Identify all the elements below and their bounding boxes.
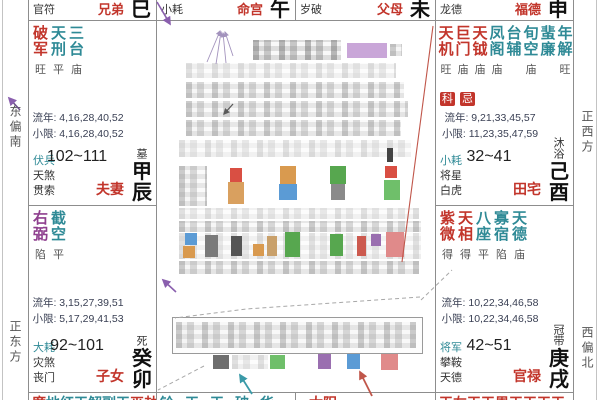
star-list: 铃天天破华: [160, 393, 285, 400]
shensha-label: 岁破: [300, 1, 322, 17]
stem-branch: 癸卯: [131, 349, 153, 391]
liunian-ages: 流年: 3,15,27,39,51: [28, 295, 128, 310]
star-list: 廉地红天解副天巫劫: [32, 393, 156, 400]
lifecycle-state: 冠带: [550, 324, 566, 346]
lifecycle-state: 死: [133, 335, 149, 346]
branch-char: 未: [410, 0, 430, 20]
palace-cell-yin[interactable]: 廉地红天解副天巫劫: [28, 392, 156, 400]
palace-cell-mao[interactable]: 右弼陷 截空平 流年: 3,15,27,39,51 小限: 5,17,29,41…: [28, 205, 156, 392]
shensha-label: 龙德: [440, 1, 462, 17]
star-list: 太阳: [309, 393, 337, 400]
grid-line: [2, 0, 3, 400]
sihua-badge: 科: [440, 92, 455, 106]
sihua-badge: 忌: [460, 92, 475, 106]
branch-char: 巳: [131, 0, 151, 20]
star-column: 年解旺: [557, 26, 573, 73]
shensha-label: 小耗: [161, 1, 183, 17]
decade-range: 42~51: [435, 337, 543, 355]
palace-cell-chen[interactable]: 破军旺 天刑平 三台庙 流年: 4,16,28,40,52 小限: 4,16,2…: [28, 20, 156, 205]
decade-range: 92~101: [28, 337, 126, 355]
shensha-label: 将星: [440, 169, 462, 184]
xiaoxian-ages: 小限: 4,16,28,40,52: [28, 126, 128, 141]
stem-branch: 庚戌: [548, 349, 570, 391]
star-column: 截空平: [50, 211, 67, 258]
palace-cell-zi[interactable]: 太阳: [295, 392, 435, 400]
xiaoxian-ages: 小限: 5,17,29,41,53: [28, 311, 128, 326]
palace-cell-shen[interactable]: 龙德 福德 申: [435, 0, 573, 20]
star-column: 三台庙: [68, 26, 85, 73]
palace-name: 命宫: [237, 0, 263, 18]
star-column: 蜚廉: [540, 26, 556, 73]
star-column: 八座平: [475, 211, 492, 258]
star-list: 破军旺 天刑平 三台庙: [32, 26, 85, 73]
star-column: 凤阁庙: [489, 26, 505, 73]
shensha-label: 天德: [440, 371, 462, 386]
shensha-label: 贯索: [33, 184, 55, 199]
shensha-label: 白虎: [440, 184, 462, 199]
stem-branch: 己酉: [548, 162, 570, 204]
star-list: 右弼陷 截空平: [32, 211, 67, 258]
palace-name: 兄弟: [98, 0, 124, 18]
shensha-label: 丧门: [33, 371, 55, 386]
star-column: 旬空庙: [523, 26, 539, 73]
xiaoxian-ages: 小限: 10,22,34,46,58: [435, 311, 545, 326]
palace-cell-you[interactable]: 天机旺 巨门庙 天钺庙 凤阁庙 台辅 旬空庙 蜚廉 年解旺 科忌 流年: 9,2…: [435, 20, 573, 205]
liunian-ages: 流年: 4,16,28,40,52: [28, 110, 128, 125]
direction-label-west-north: 西偏北: [579, 326, 596, 371]
palace-name: 田宅: [513, 179, 541, 199]
liunian-ages: 流年: 9,21,33,45,57: [435, 110, 545, 125]
palace-cell-si[interactable]: 官符 兄弟 巳: [28, 0, 156, 20]
lifecycle-state: 沐浴: [550, 137, 566, 159]
shensha-label: 灾煞: [33, 356, 55, 371]
star-column: 寡宿陷: [493, 211, 510, 258]
star-column: 天德庙: [511, 211, 528, 258]
grid-line: [596, 0, 597, 400]
star-list: 紫微得 天相得 八座平 寡宿陷 天德庙: [439, 211, 528, 258]
star-column: 右弼陷: [32, 211, 49, 258]
star-column: 巨门庙: [455, 26, 471, 73]
palace-name: 子女: [96, 366, 124, 386]
star-column: 天刑平: [50, 26, 67, 73]
palace-cell-hai[interactable]: 天左天天恩天天天天: [435, 392, 573, 400]
star-list: 天左天天恩天天天天: [439, 393, 565, 400]
shensha-label: 攀鞍: [440, 356, 462, 371]
branch-char: 午: [270, 0, 290, 20]
palace-name: 夫妻: [96, 179, 124, 199]
palace-name: 官禄: [513, 366, 541, 386]
direction-label-east: 正东方: [7, 320, 24, 365]
branch-char: 申: [548, 0, 568, 20]
star-column: 天钺庙: [472, 26, 488, 73]
stem-branch: 甲辰: [131, 162, 153, 204]
xiaoxian-ages: 小限: 11,23,35,47,59: [435, 126, 545, 141]
sihua-badges: 科忌: [440, 92, 475, 106]
direction-label-east-south: 东偏南: [7, 105, 24, 150]
redacted-center-panel: [156, 20, 435, 392]
grid-line: [573, 0, 574, 400]
decade-range: 102~111: [28, 148, 126, 166]
direction-label-west: 正西方: [579, 110, 596, 155]
shensha-label: 官符: [33, 1, 55, 17]
star-column: 台辅: [506, 26, 522, 73]
palace-cell-wei[interactable]: 岁破 父母 未: [295, 0, 435, 20]
decade-range: 32~41: [435, 148, 543, 166]
star-column: 天相得: [457, 211, 474, 258]
palace-name: 福德: [515, 0, 541, 18]
star-list: 天机旺 巨门庙 天钺庙 凤阁庙 台辅 旬空庙 蜚廉 年解旺: [438, 26, 573, 73]
palace-cell-xu[interactable]: 紫微得 天相得 八座平 寡宿陷 天德庙 流年: 10,22,34,46,58 小…: [435, 205, 573, 392]
star-column: 天机旺: [438, 26, 454, 73]
star-column: 破军旺: [32, 26, 49, 73]
ziwei-doushu-chart: 东偏南 正东方 正西方 西偏北 官符 兄弟 巳 小耗 命宫 午 岁破 父母 未 …: [0, 0, 600, 400]
palace-cell-wu[interactable]: 小耗 命宫 午: [156, 0, 295, 20]
star-column: 紫微得: [439, 211, 456, 258]
liunian-ages: 流年: 10,22,34,46,58: [435, 295, 545, 310]
palace-name: 父母: [377, 0, 403, 18]
lifecycle-state: 墓: [133, 148, 149, 159]
shensha-label: 天煞: [33, 169, 55, 184]
palace-cell-chou[interactable]: 铃天天破华: [156, 392, 295, 400]
